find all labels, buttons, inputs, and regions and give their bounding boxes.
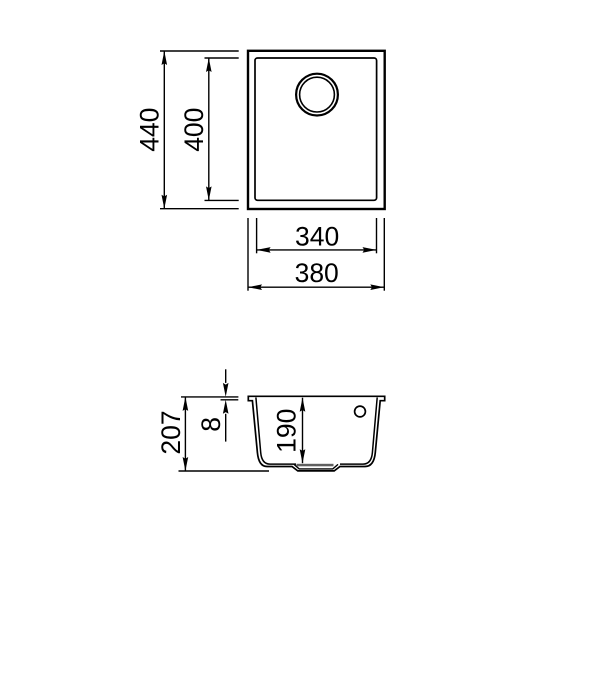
svg-text:207: 207 — [156, 410, 186, 454]
svg-text:440: 440 — [134, 108, 164, 152]
svg-text:380: 380 — [295, 258, 339, 288]
svg-text:190: 190 — [271, 409, 301, 453]
svg-text:340: 340 — [295, 221, 339, 251]
svg-text:8: 8 — [196, 417, 226, 432]
svg-text:400: 400 — [179, 108, 209, 152]
